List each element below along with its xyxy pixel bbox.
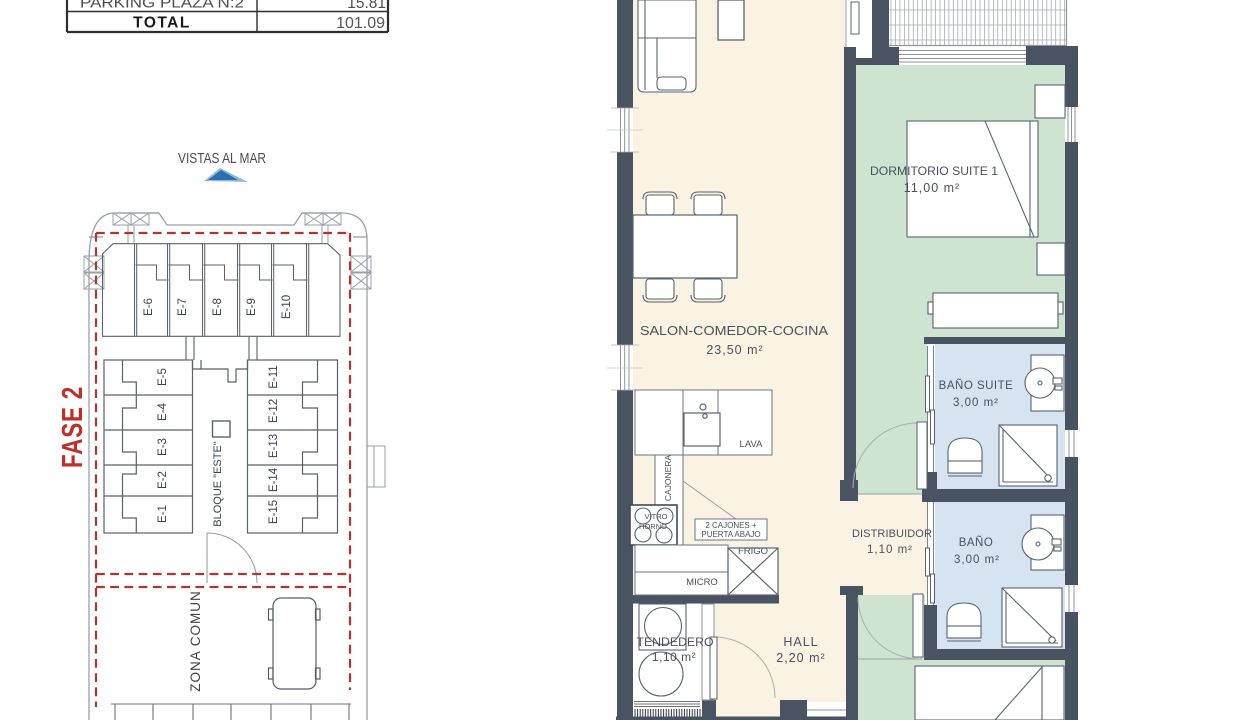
svg-text:E-5: E-5 — [157, 368, 169, 386]
svg-text:3,00 m²: 3,00 m² — [953, 397, 999, 409]
svg-text:3,00 m²: 3,00 m² — [954, 554, 1000, 566]
svg-text:LAVA: LAVA — [740, 439, 764, 450]
svg-text:CAJONERA: CAJONERA — [663, 455, 673, 502]
svg-text:11,00 m²: 11,00 m² — [904, 181, 960, 195]
svg-text:FASE 2: FASE 2 — [57, 386, 89, 468]
svg-text:2 CAJONES +: 2 CAJONES + — [705, 521, 757, 530]
svg-text:E-15: E-15 — [268, 500, 280, 524]
svg-text:E-13: E-13 — [268, 434, 280, 458]
svg-text:TOTAL: TOTAL — [133, 15, 191, 32]
svg-text:E-6: E-6 — [143, 298, 155, 316]
svg-text:1,10 m²: 1,10 m² — [652, 650, 696, 664]
svg-text:E-2: E-2 — [157, 471, 169, 489]
svg-text:23,50 m²: 23,50 m² — [706, 343, 763, 357]
svg-text:PARKING PLAZA N:2: PARKING PLAZA N:2 — [80, 0, 244, 12]
svg-text:VISTAS AL MAR: VISTAS AL MAR — [178, 151, 266, 167]
svg-text:E-7: E-7 — [177, 298, 189, 316]
svg-text:BLOQUE "ESTE": BLOQUE "ESTE" — [212, 441, 224, 527]
svg-text:101.09: 101.09 — [336, 15, 385, 32]
svg-text:2,20 m²: 2,20 m² — [776, 651, 825, 665]
svg-text:HALL: HALL — [783, 635, 818, 649]
svg-text:SALON-COMEDOR-COCINA: SALON-COMEDOR-COCINA — [640, 323, 828, 338]
svg-text:DISTRIBUIDOR: DISTRIBUIDOR — [852, 528, 932, 540]
svg-text:PUERTA ABAJO: PUERTA ABAJO — [701, 530, 760, 539]
svg-text:DORMITORIO SUITE 1: DORMITORIO SUITE 1 — [870, 164, 998, 178]
svg-text:HORNO: HORNO — [639, 522, 667, 531]
svg-text:E-1: E-1 — [157, 505, 169, 523]
svg-text:1,10 m²: 1,10 m² — [867, 544, 913, 556]
svg-text:VITRO: VITRO — [645, 512, 668, 521]
svg-text:E-14: E-14 — [268, 467, 280, 492]
svg-text:FRIGO: FRIGO — [738, 546, 768, 557]
svg-text:BAÑO SUITE: BAÑO SUITE — [939, 379, 1014, 392]
svg-text:E-10: E-10 — [281, 295, 293, 319]
svg-text:ZONA COMUN: ZONA COMUN — [188, 590, 203, 692]
svg-text:TENDEDERO: TENDEDERO — [637, 635, 714, 649]
svg-text:MICRO: MICRO — [686, 577, 718, 588]
svg-text:E-12: E-12 — [268, 399, 280, 423]
svg-text:BAÑO: BAÑO — [959, 536, 994, 549]
svg-text:E-8: E-8 — [212, 298, 224, 316]
svg-text:E-4: E-4 — [157, 402, 169, 421]
svg-text:E-9: E-9 — [246, 298, 258, 316]
svg-text:E-3: E-3 — [157, 438, 169, 456]
svg-text:E-11: E-11 — [268, 365, 280, 388]
svg-text:15.81: 15.81 — [347, 0, 386, 12]
